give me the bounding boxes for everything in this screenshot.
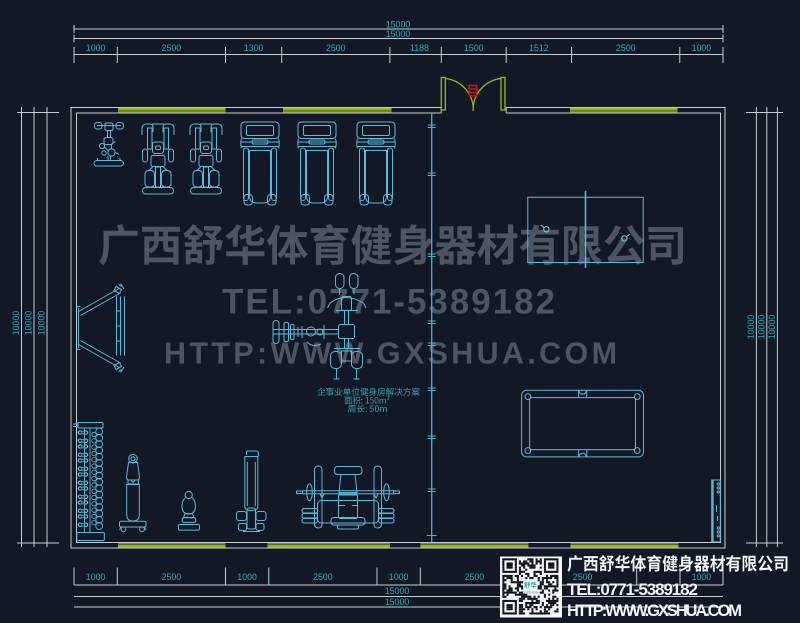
svg-text:TEL:0771-5389182: TEL:0771-5389182 [567, 580, 698, 599]
svg-text:2500: 2500 [162, 572, 182, 582]
svg-text:10000: 10000 [757, 315, 767, 340]
svg-text:15000: 15000 [386, 20, 411, 30]
svg-text:1188: 1188 [410, 43, 429, 53]
svg-text:2500: 2500 [465, 572, 485, 582]
svg-text:1000: 1000 [389, 572, 409, 582]
svg-text:1500: 1500 [464, 43, 484, 53]
svg-text:1000: 1000 [237, 572, 257, 582]
svg-text:10000: 10000 [746, 315, 756, 340]
svg-text:1000: 1000 [86, 43, 106, 53]
svg-text:10000: 10000 [37, 311, 47, 336]
svg-text:10000: 10000 [11, 311, 21, 336]
svg-text:1000: 1000 [86, 572, 106, 582]
svg-text:10000: 10000 [767, 315, 777, 340]
svg-text:1300: 1300 [244, 43, 264, 53]
svg-text:10000: 10000 [24, 311, 34, 336]
svg-text:15000: 15000 [385, 586, 410, 596]
svg-text:GXSHUA: GXSHUA [523, 590, 539, 594]
svg-text:1000: 1000 [692, 43, 712, 53]
svg-text:2500: 2500 [162, 43, 182, 53]
svg-text:2500: 2500 [326, 43, 346, 53]
svg-text:15000: 15000 [385, 597, 410, 607]
svg-text:TEL:0771-5389182: TEL:0771-5389182 [222, 283, 555, 322]
svg-text:1512: 1512 [529, 43, 549, 53]
svg-text:15000: 15000 [386, 29, 411, 39]
svg-text:2500: 2500 [313, 572, 333, 582]
svg-text:2500: 2500 [616, 43, 636, 53]
svg-text:HTTP:WWW.GXSHUA.COM: HTTP:WWW.GXSHUA.COM [567, 602, 742, 620]
